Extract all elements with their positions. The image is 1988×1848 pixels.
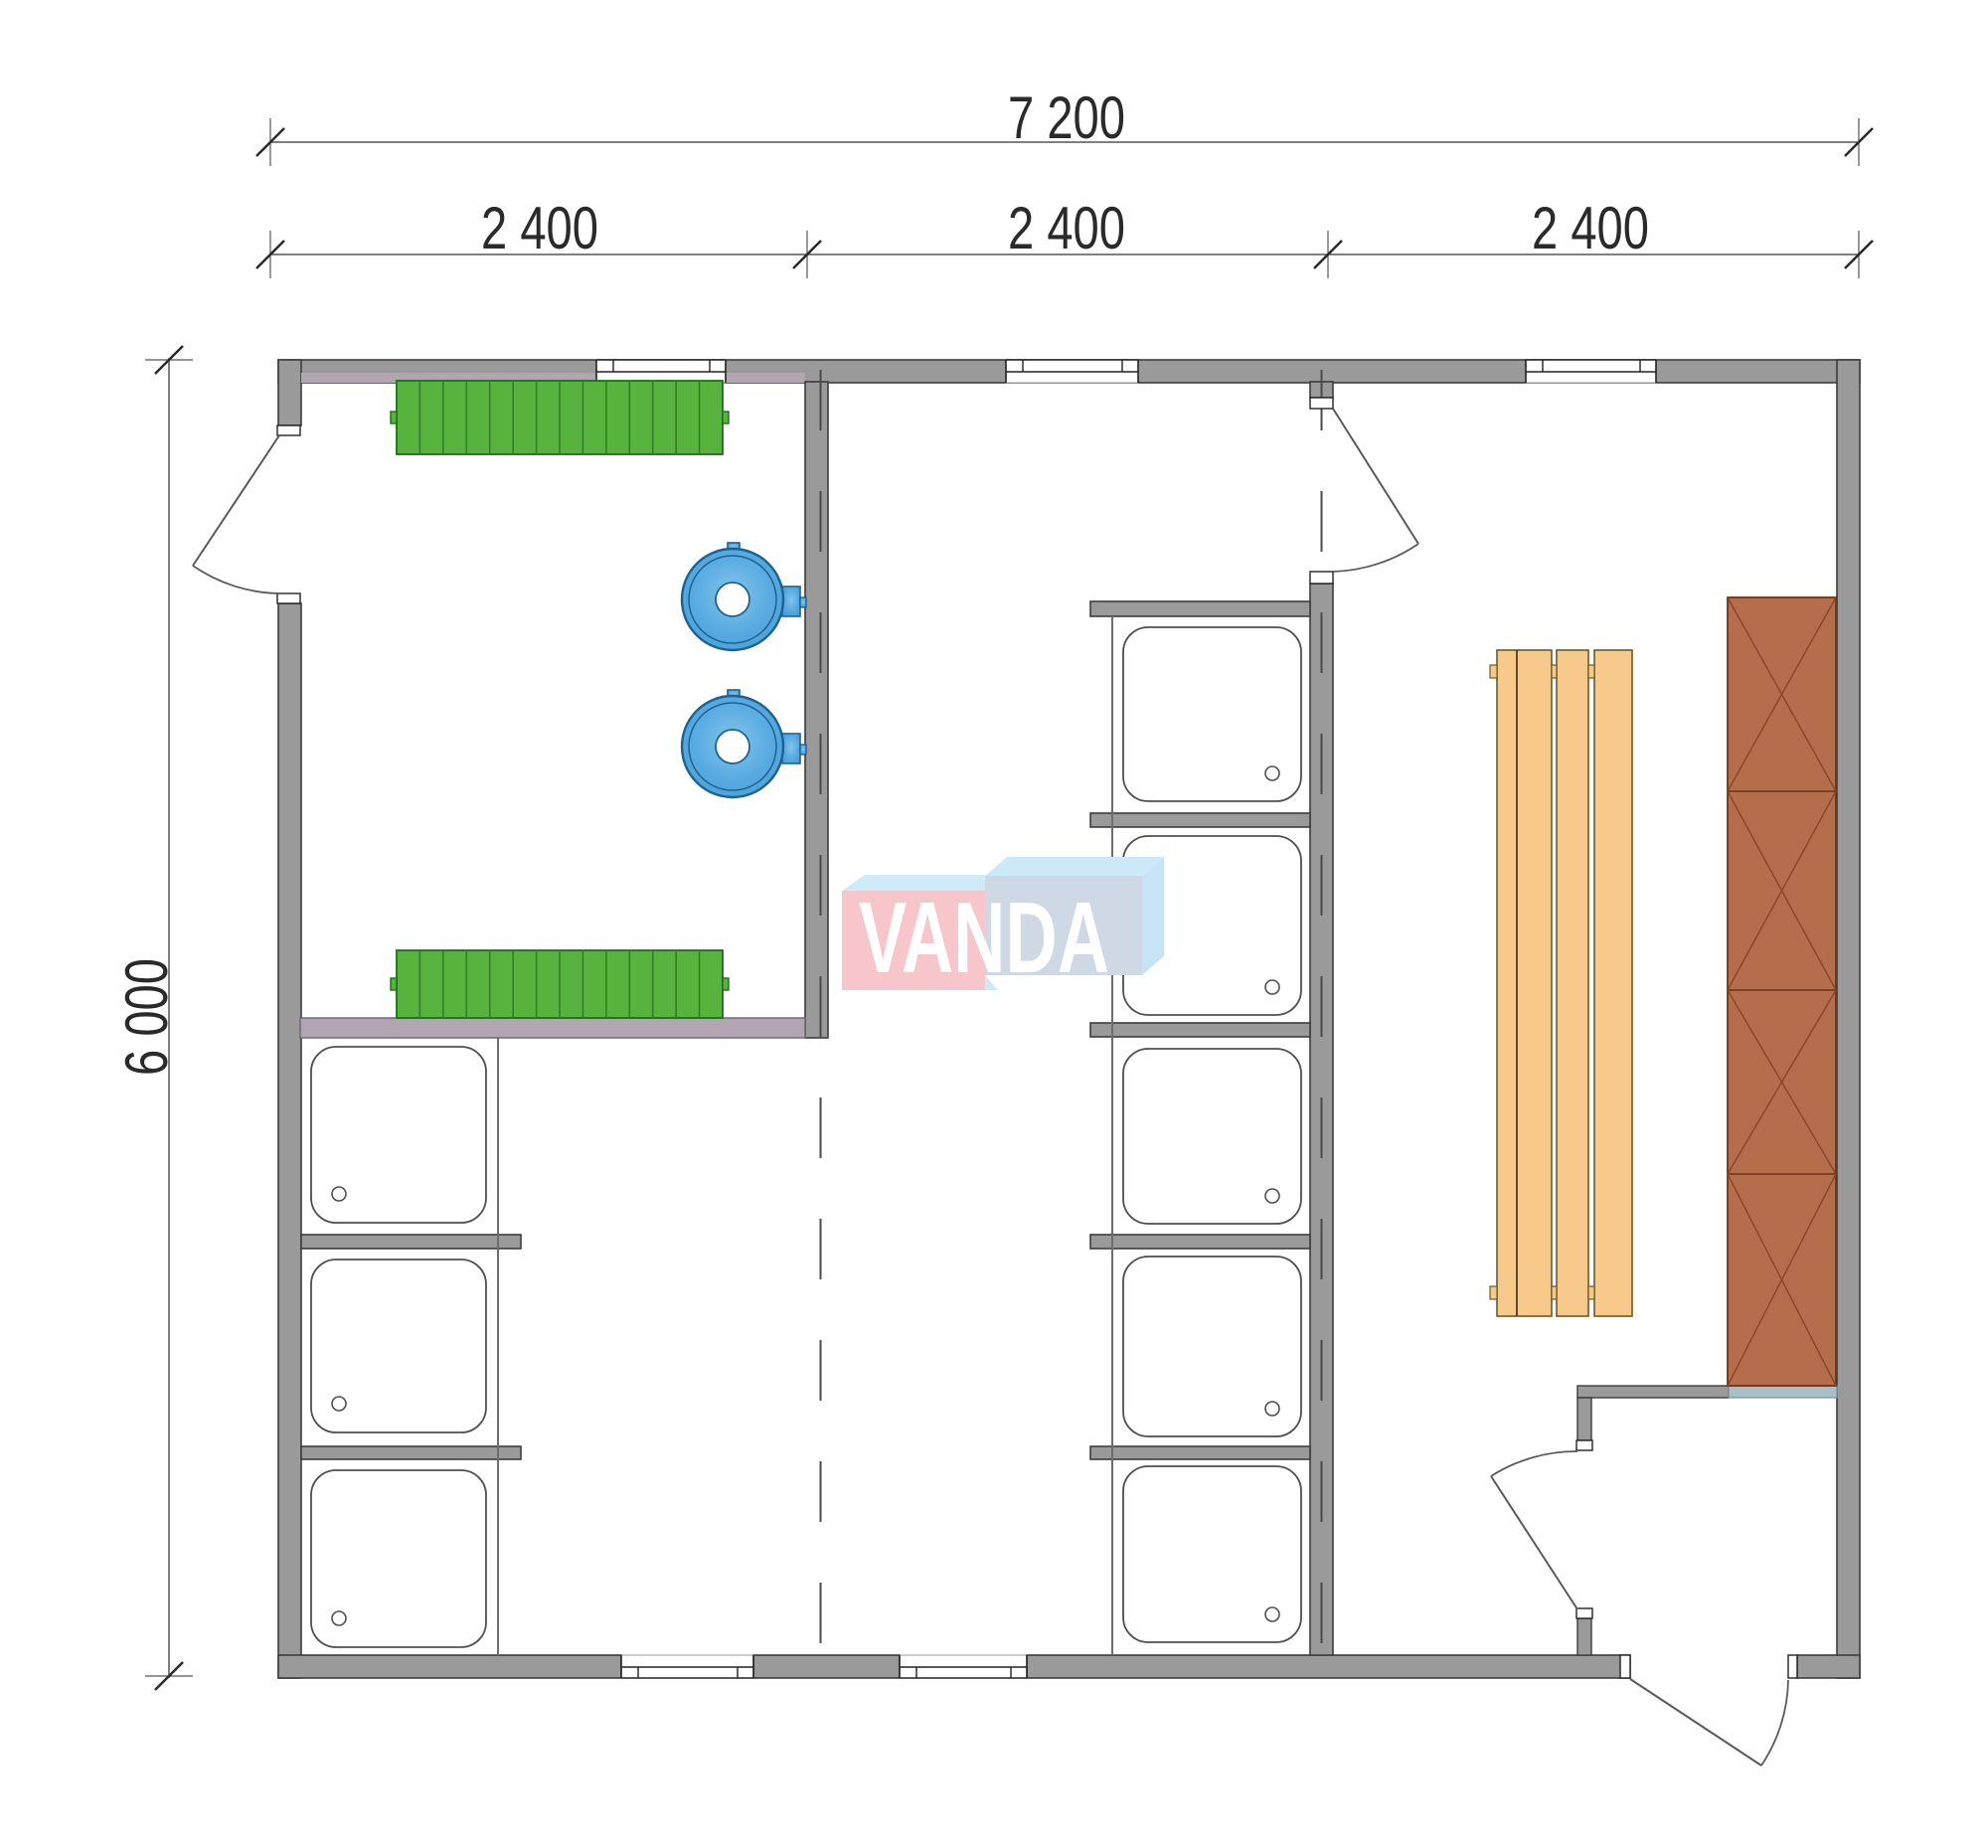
svg-text:7 200: 7 200 xyxy=(1008,84,1125,151)
svg-text:6 000: 6 000 xyxy=(113,958,180,1076)
svg-text:VANDA: VANDA xyxy=(859,883,1109,994)
svg-text:2 400: 2 400 xyxy=(481,195,598,261)
svg-text:2 400: 2 400 xyxy=(1008,195,1125,261)
svg-text:2 400: 2 400 xyxy=(1532,195,1649,261)
